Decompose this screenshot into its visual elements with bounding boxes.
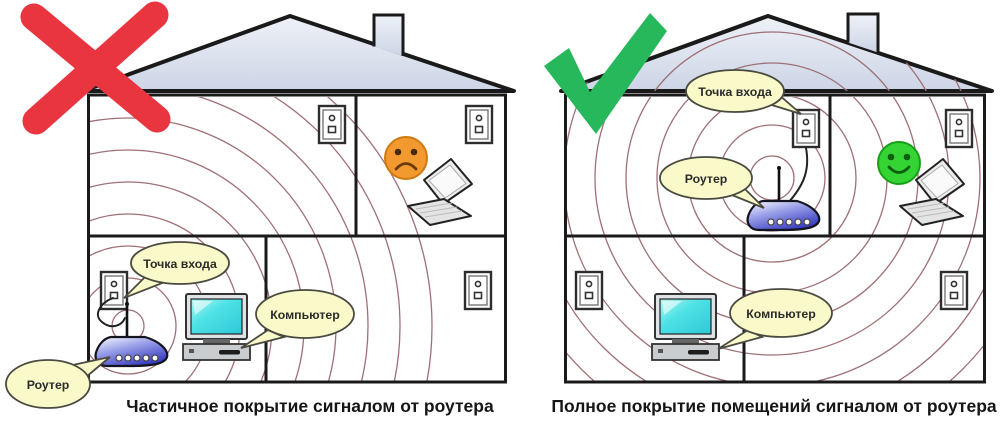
wifi-router-placement-diagram: Точка входа Роутер Компьютер Частичное п…: [0, 0, 1000, 436]
right-panel: Точка входа Роутер Компьютер Полное покр…: [471, 0, 1000, 436]
outlet-icon: [793, 110, 819, 147]
computer-label: Компьютер: [746, 307, 816, 321]
diagram-canvas: Точка входа Роутер Компьютер Частичное п…: [0, 0, 1000, 436]
happy-face-icon: [878, 142, 920, 184]
right-caption: Полное покрытие помещений сигналом от ро…: [551, 396, 997, 416]
outlet-icon: [576, 272, 602, 309]
computer-label: Компьютер: [270, 308, 340, 322]
left-panel: Точка входа Роутер Компьютер Частичное п…: [0, 15, 514, 436]
outlet-icon: [946, 110, 972, 147]
outlet-icon: [465, 272, 491, 309]
outlet-icon: [941, 272, 967, 309]
outlet-icon: [466, 106, 492, 143]
left-caption: Частичное покрытие сигналом от роутера: [126, 396, 494, 416]
desktop-computer-icon: [183, 294, 250, 360]
entry-point-label: Точка входа: [698, 85, 772, 99]
entry-point-label: Точка входа: [143, 257, 217, 271]
router-label: Роутер: [685, 172, 728, 186]
desktop-computer-icon: [652, 294, 719, 360]
sad-face-icon: [385, 137, 427, 179]
router-label: Роутер: [27, 378, 70, 392]
outlet-icon: [319, 106, 345, 143]
